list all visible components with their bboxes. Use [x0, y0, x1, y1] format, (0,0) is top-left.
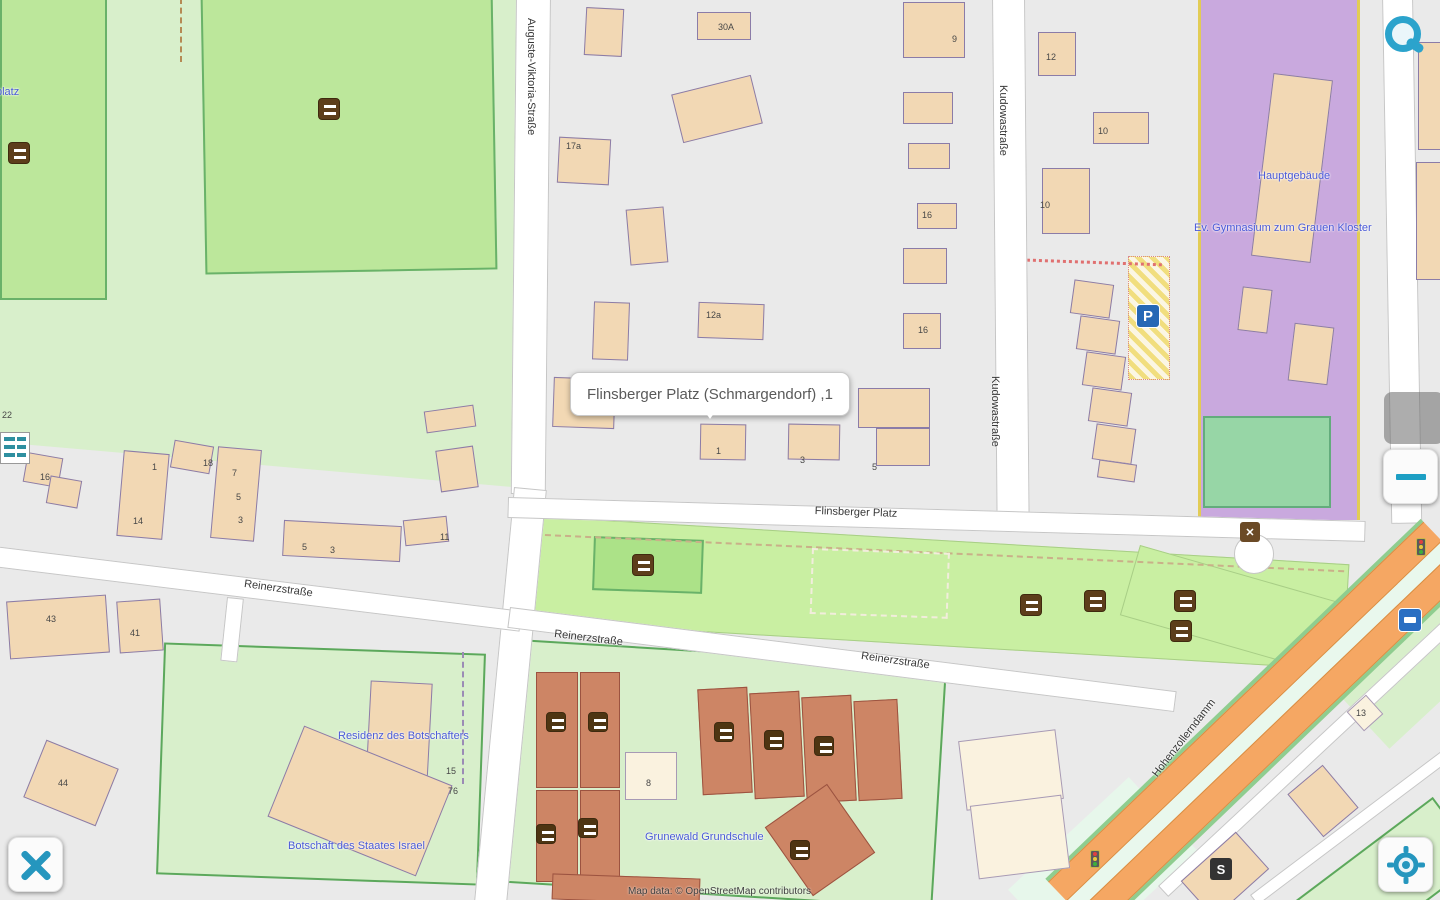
building [625, 752, 677, 800]
house-number: 1 [716, 446, 721, 456]
building [170, 440, 214, 475]
park-icon [632, 554, 654, 576]
building [1088, 387, 1132, 426]
house-number: 16 [918, 325, 928, 335]
playground-icon [318, 98, 340, 120]
building [584, 7, 624, 57]
target-icon [1387, 846, 1425, 884]
search-icon [1383, 14, 1425, 56]
crossing-icon: ✕ [1240, 522, 1260, 542]
building [858, 388, 930, 428]
house-number: 17a [566, 141, 581, 151]
school-icon [578, 818, 598, 838]
house-number: 22 [2, 410, 12, 420]
building [557, 137, 611, 186]
map-attribution: Map data: © OpenStreetMap contributors [628, 886, 811, 897]
house-number: 10 [1040, 200, 1050, 210]
house-number: 11 [440, 532, 449, 542]
minus-icon [1396, 474, 1426, 480]
building [903, 2, 965, 58]
house-number: 10 [1098, 126, 1108, 136]
house-number: 41 [130, 628, 140, 638]
playground-icon [8, 142, 30, 164]
school-icon [536, 824, 556, 844]
house-number: 16 [922, 210, 932, 220]
school-icon [714, 722, 734, 742]
place-label: Grunewald Grundschule [645, 831, 764, 843]
school-icon [588, 712, 608, 732]
building [903, 248, 947, 284]
building [697, 302, 764, 340]
house-number: 12 [1046, 52, 1056, 62]
house-number: 7 [232, 468, 237, 478]
house-number: 43 [46, 614, 56, 624]
house-number: 18 [203, 458, 213, 468]
house-number: 30A [718, 22, 734, 32]
building [1288, 323, 1335, 385]
map-canvas[interactable]: PS✕ Auguste-Viktoria-StraßeKudowastraßeK… [0, 0, 1440, 900]
house-number: 9 [952, 34, 957, 44]
house-number: 13 [1356, 708, 1366, 718]
building [903, 92, 953, 124]
supermarket-icon: S [1210, 858, 1232, 880]
building [1082, 351, 1126, 390]
map-area [201, 0, 498, 275]
place-label: Residenz des Botschafters [338, 730, 469, 742]
building [1076, 315, 1120, 354]
place-label: Ev. Gymnasium zum Grauen Kloster [1194, 222, 1372, 234]
building [6, 595, 110, 660]
building [1038, 32, 1076, 76]
building [1416, 162, 1440, 280]
house-number: 5 [872, 462, 877, 472]
house-number: 15 [446, 766, 456, 776]
school-icon [546, 712, 566, 732]
footpath-dashed [180, 0, 182, 62]
school-icon [764, 730, 784, 750]
building [116, 450, 169, 540]
building [853, 699, 902, 801]
house-number: 44 [58, 778, 68, 788]
park-icon [1170, 620, 1192, 642]
school-icon [814, 736, 834, 756]
zoom-out-button[interactable] [1383, 449, 1438, 504]
street-label: Auguste-Viktoria-Straße [525, 18, 537, 135]
house-number: 3 [330, 545, 335, 555]
traffic-light-icon [1090, 850, 1100, 868]
picnic-table-icon [0, 432, 30, 464]
traffic-light-icon [1416, 538, 1426, 556]
park-icon [1174, 590, 1196, 612]
place-label: platz [0, 86, 19, 98]
map-popup[interactable]: Flinsberger Platz (Schmargendorf) ,1 [570, 372, 850, 416]
house-number: 8 [646, 778, 651, 788]
house-number: 3 [238, 515, 243, 525]
building [1092, 423, 1137, 464]
map-area [1203, 416, 1331, 508]
house-number: 76 [448, 786, 458, 796]
side-panel-handle[interactable] [1384, 392, 1440, 444]
park-path-loop [810, 548, 950, 619]
place-label: Botschaft des Staates Israel [288, 840, 425, 852]
street-label: Kudowastraße [989, 376, 1001, 447]
building [1097, 459, 1137, 482]
building [970, 795, 1070, 880]
house-number: 3 [800, 455, 805, 465]
building [1237, 286, 1272, 333]
place-label: Hauptgebäude [1258, 170, 1330, 182]
house-number: 5 [302, 542, 307, 552]
building [23, 740, 119, 827]
my-location-button[interactable] [1378, 837, 1433, 892]
building [908, 143, 950, 169]
park-icon [1020, 594, 1042, 616]
building [1418, 42, 1440, 150]
bench-icon [1398, 608, 1422, 632]
building [626, 206, 669, 265]
building [876, 428, 930, 466]
house-number: 14 [133, 516, 143, 526]
house-number: 5 [236, 492, 241, 502]
building [671, 75, 763, 143]
building [116, 599, 164, 654]
fence-dashed [462, 652, 464, 784]
street-label: Kudowastraße [997, 85, 1009, 156]
parking-icon: P [1136, 304, 1160, 328]
school-icon [790, 840, 810, 860]
park-icon [1084, 590, 1106, 612]
close-button[interactable] [8, 837, 63, 892]
building [1070, 279, 1114, 318]
house-number: 1 [152, 462, 157, 472]
building [282, 520, 402, 562]
close-icon [17, 846, 55, 884]
house-number: 16 [40, 472, 50, 482]
building [788, 424, 841, 461]
building [435, 446, 478, 493]
popup-label: Flinsberger Platz (Schmargendorf) ,1 [587, 386, 833, 403]
building [46, 475, 82, 508]
house-number: 12a [706, 310, 721, 320]
building [592, 301, 630, 360]
